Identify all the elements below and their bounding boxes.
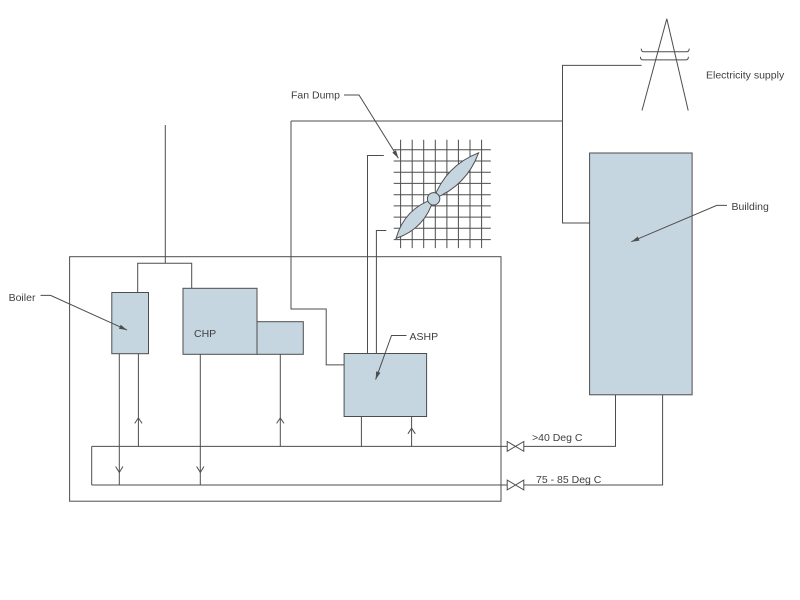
svg-text:Building: Building [732, 201, 770, 213]
svg-text:75 - 85 Deg C: 75 - 85 Deg C [536, 474, 602, 486]
svg-text:Boiler: Boiler [9, 292, 36, 304]
svg-text:>40 Deg C: >40 Deg C [532, 432, 583, 444]
svg-text:CHP: CHP [194, 328, 216, 340]
svg-text:ASHP: ASHP [410, 331, 439, 343]
svg-text:Fan Dump: Fan Dump [291, 90, 340, 102]
svg-text:Electricity supply: Electricity supply [706, 70, 785, 82]
